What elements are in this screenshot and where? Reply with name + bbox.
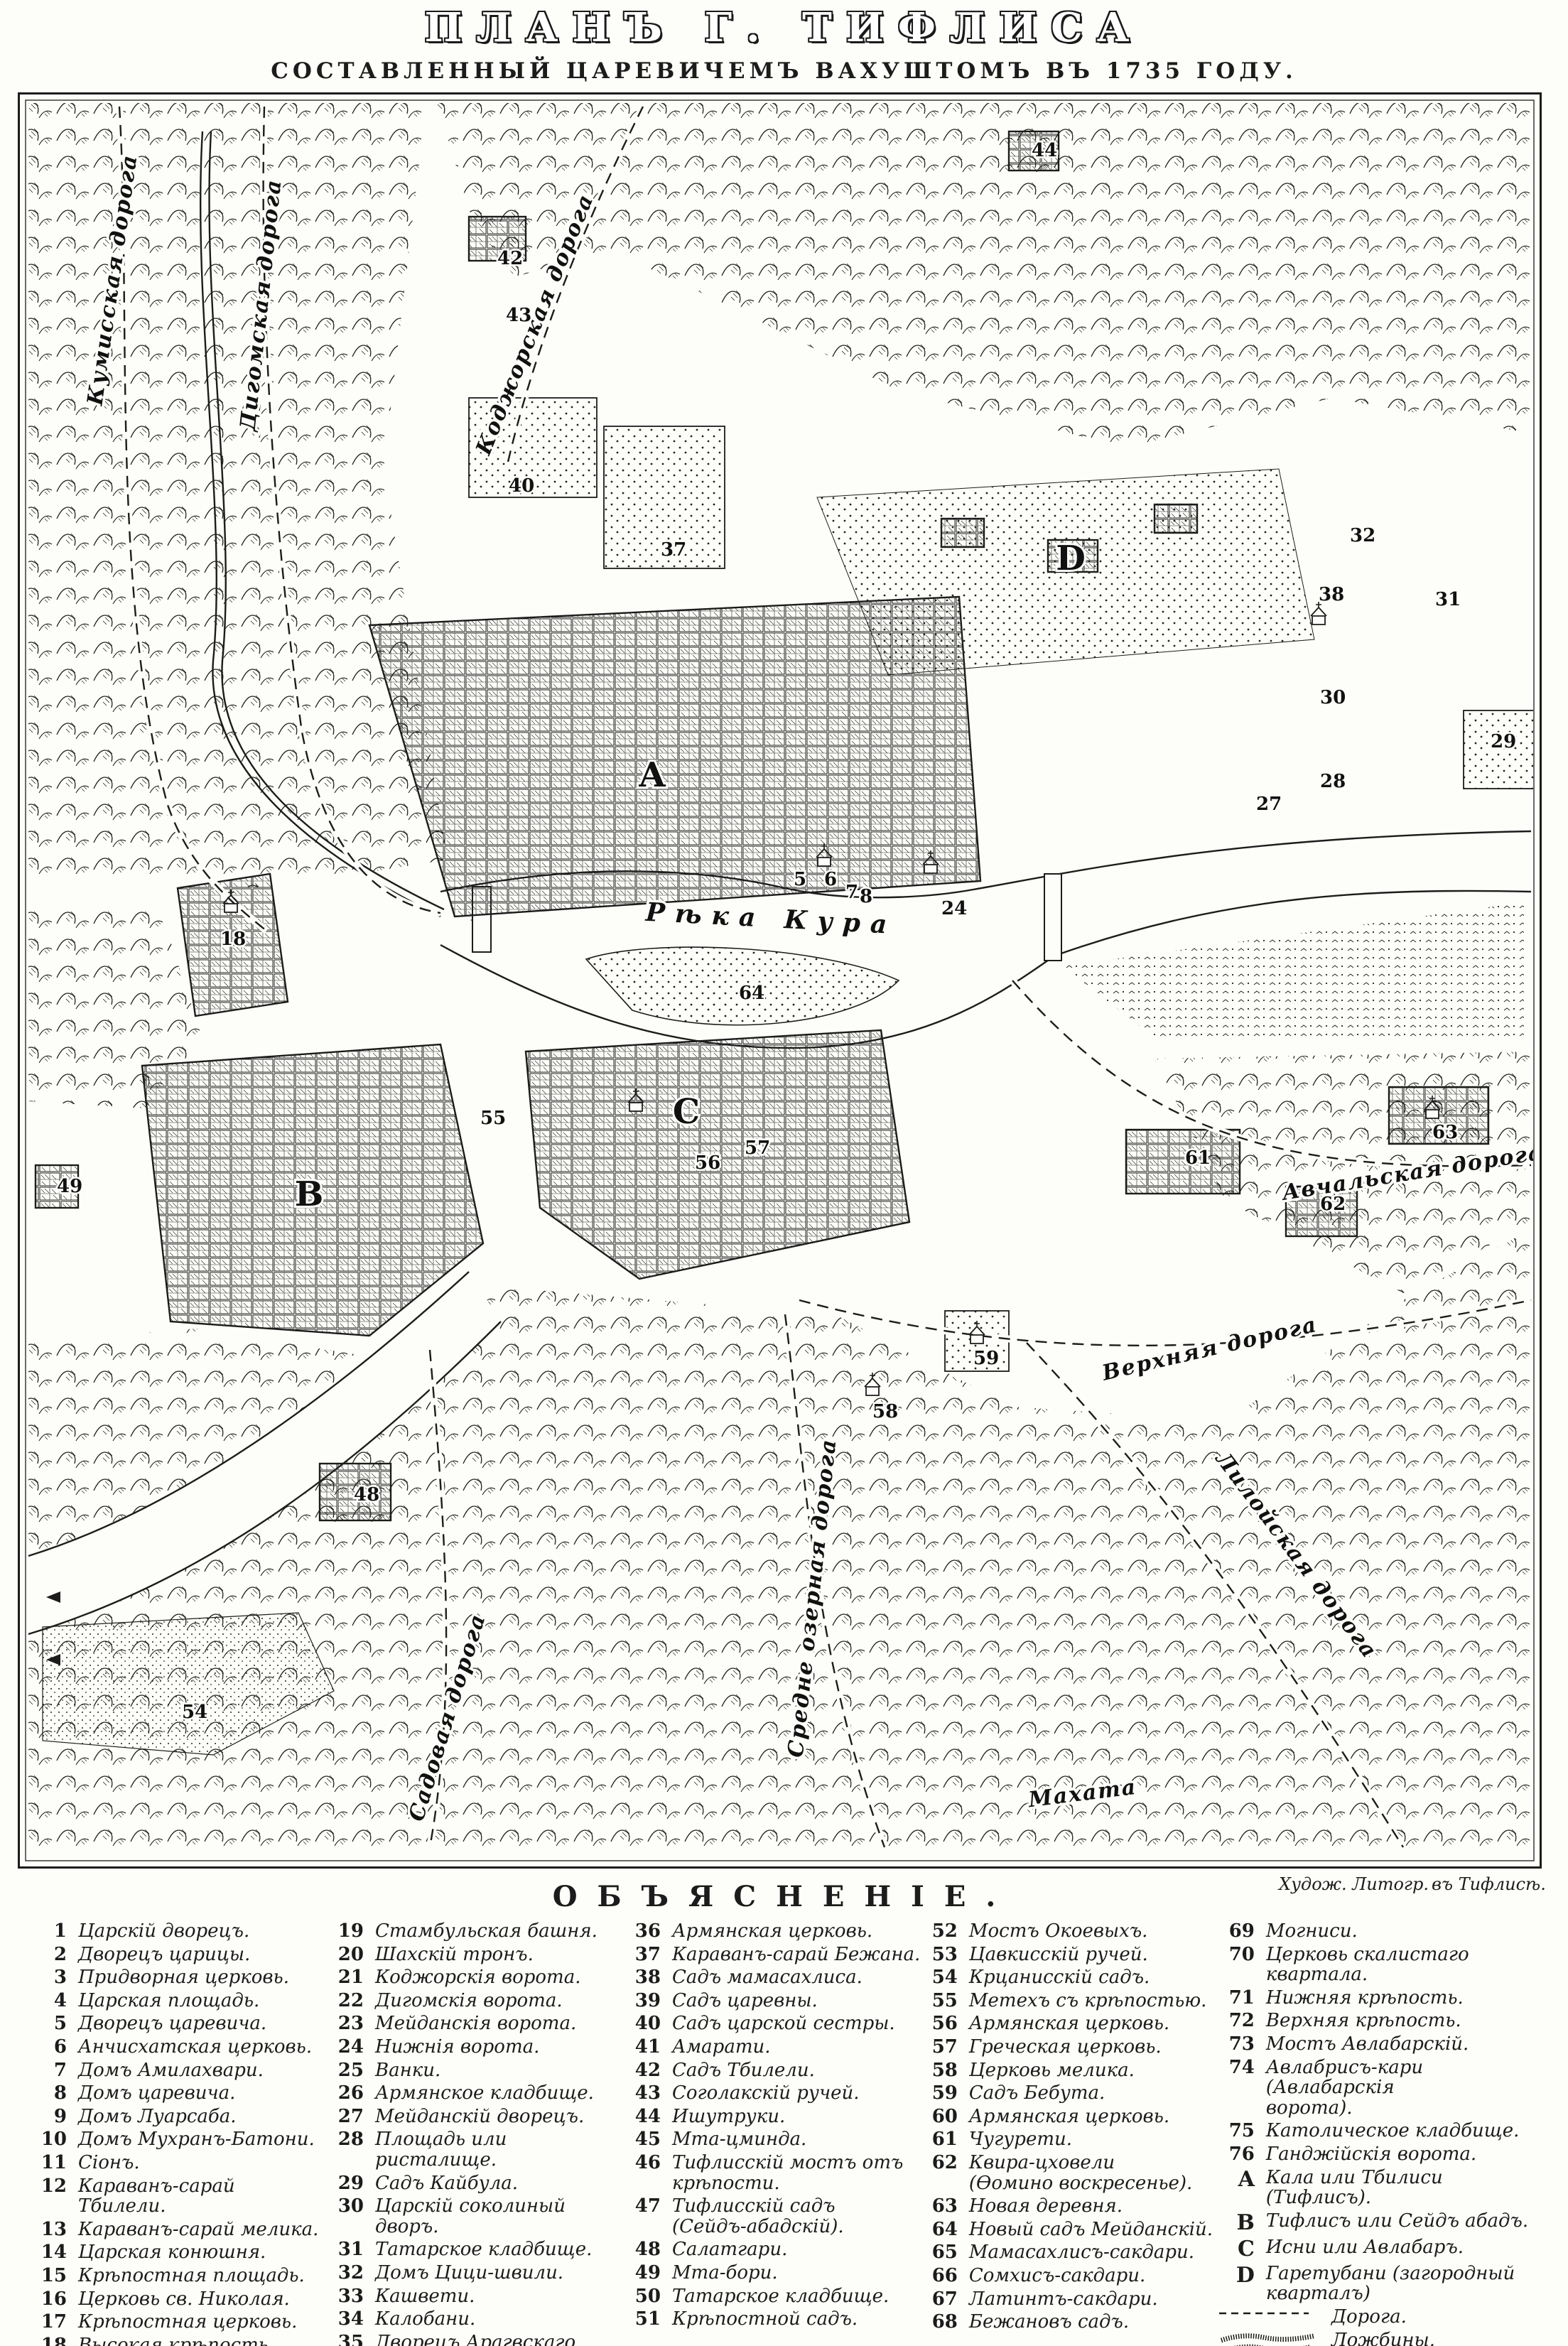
- legend-item-text: Царская конюшня.: [78, 2242, 266, 2263]
- legend-item-number: 25: [327, 2060, 375, 2081]
- legend-item: 73Мостъ Авлабарскій.: [1218, 2034, 1550, 2055]
- legend-item: 64Новый садъ Мейданскій.: [921, 2220, 1218, 2240]
- legend-item-number: 10: [30, 2129, 78, 2150]
- legend-item-text: Исни или Авлабаръ.: [1266, 2237, 1464, 2258]
- legend-item-number: 23: [327, 2013, 375, 2034]
- legend-item-text: Нижняя крѣпость.: [1266, 1988, 1464, 2009]
- legend-item-text: Армянская церковь.: [672, 1921, 872, 1942]
- legend-item-number: 46: [624, 2153, 672, 2173]
- legend-item: 65Мамасахлисъ-сакдари.: [921, 2242, 1218, 2263]
- legend-item-text: Площадь или ристалище.: [375, 2129, 624, 2170]
- legend-item-number: 64: [921, 2220, 969, 2240]
- legend-item-number: 70: [1218, 1945, 1266, 1965]
- legend-item: 24Нижнія ворота.: [327, 2037, 624, 2058]
- legend-item-number: 12: [30, 2176, 78, 2197]
- legend-item-number: 13: [30, 2220, 78, 2240]
- legend-item-text: Цавкисскій ручей.: [969, 1945, 1148, 1965]
- legend-item: 10Домъ Мухранъ-Батони.: [30, 2129, 327, 2150]
- legend-item-number: 73: [1218, 2034, 1266, 2055]
- legend-item-text: Домъ царевича.: [78, 2083, 235, 2104]
- legend-item: 45Мта-цминда.: [624, 2129, 921, 2150]
- legend-item-number: 50: [624, 2286, 672, 2307]
- legend-item: 48Салатгари.: [624, 2239, 921, 2260]
- legend-item-number: 1: [30, 1921, 78, 1942]
- map-marker: 28: [1320, 771, 1346, 792]
- avlabar-bridge: [1044, 874, 1061, 961]
- legend-item: 72Верхняя крѣпость.: [1218, 2011, 1550, 2031]
- map-marker: 18: [220, 929, 246, 950]
- legend-item: 7Домъ Амилахвари.: [30, 2060, 327, 2081]
- map-marker: 38: [1319, 584, 1344, 605]
- legend-item: 18Высокая крѣпость.: [30, 2335, 327, 2346]
- legend-item: 21Коджорскія ворота.: [327, 1967, 624, 1988]
- legend-item-number: 74: [1218, 2058, 1266, 2078]
- legend-item: 6Анчисхатская церковь.: [30, 2037, 327, 2058]
- legend-column-2: 19Стамбульская башня.20Шахскій тронъ.21К…: [327, 1921, 624, 2346]
- legend-item-number: 15: [30, 2266, 78, 2286]
- legend-item-text: Садъ мамасахлиса.: [672, 1967, 863, 1988]
- legend-item-text: Бежановъ садъ.: [969, 2312, 1129, 2333]
- road-label: Верхняя дорога: [1099, 1312, 1319, 1386]
- legend-item-number: 62: [921, 2153, 969, 2173]
- legend-item: 42Садъ Тбилели.: [624, 2060, 921, 2081]
- legend-item: AКала или Тбилиси (Тифлисъ).: [1218, 2168, 1550, 2208]
- map-marker: 6: [824, 869, 837, 890]
- map-marker: 59: [973, 1348, 999, 1369]
- legend-item-number: 41: [624, 2037, 672, 2058]
- legend-item: DГаретубани (загородный кварталъ): [1218, 2264, 1550, 2304]
- legend-item-number: 69: [1218, 1921, 1266, 1942]
- legend-item-text: Татарское кладбище.: [672, 2286, 889, 2307]
- district-letter: B: [295, 1174, 324, 1214]
- legend-item-number: 44: [624, 2107, 672, 2127]
- legend-item-text: Церковь скалистаго квартала.: [1266, 1945, 1550, 1985]
- legend-item: 46Тифлисскій мостъ отъ крѣпости.: [624, 2153, 921, 2193]
- legend-item-text: Кашвети.: [375, 2286, 475, 2307]
- legend-item-number: 47: [624, 2196, 672, 2217]
- legend-item: 56Армянская церковь.: [921, 2013, 1218, 2034]
- legend-item-text: Мостъ Окоевыхъ.: [969, 1921, 1148, 1942]
- legend-item-text: Татарское кладбище.: [375, 2239, 592, 2260]
- legend-item-number: 63: [921, 2196, 969, 2217]
- map-marker: 31: [1435, 589, 1461, 610]
- legend-item-number: 76: [1218, 2144, 1266, 2165]
- legend-item: 44Ишутруки.: [624, 2107, 921, 2127]
- legend-item-number: 57: [921, 2037, 969, 2058]
- legend-item-text: Мта-цминда.: [672, 2129, 806, 2150]
- legend-item: 53Цавкисскій ручей.: [921, 1945, 1218, 1965]
- legend-item-number: 8: [30, 2083, 78, 2104]
- legend-item-text: Стамбульская башня.: [375, 1921, 598, 1942]
- legend-item-number: 59: [921, 2083, 969, 2104]
- legend-item-number: 51: [624, 2309, 672, 2330]
- legend-item-text: Тифлисскій садъ (Сейдъ-абадскій).: [672, 2196, 844, 2237]
- legend-item: 66Сомхисъ-сакдари.: [921, 2266, 1218, 2286]
- map-canvas: Кумисская дорогаДигомская дорогаКоджорск…: [18, 92, 1542, 1869]
- legend-item-number: 68: [921, 2312, 969, 2333]
- legend-item-text: Крѣпостная площадь.: [78, 2266, 305, 2286]
- legend-item-number: 65: [921, 2242, 969, 2263]
- legend-item: 68Бежановъ садъ.: [921, 2312, 1218, 2333]
- legend-item-text: Дворецъ царевича.: [78, 2013, 266, 2034]
- legend-item-number: 7: [30, 2060, 78, 2081]
- legend-item-text: Караванъ-сарай Бежана.: [672, 1945, 920, 1965]
- legend-item-number: 75: [1218, 2121, 1266, 2141]
- legend-item: 33Кашвети.: [327, 2286, 624, 2307]
- legend-item-text: Крѣпостная церковь.: [78, 2312, 297, 2333]
- legend-item-text: Домъ Мухранъ-Батони.: [78, 2129, 315, 2150]
- legend-item-text: Анчисхатская церковь.: [78, 2037, 312, 2058]
- legend-item: 12Караванъ-сарай Тбилели.: [30, 2176, 327, 2217]
- legend-item-text: Садъ царевны.: [672, 1991, 818, 2011]
- legend: 1Царскій дворецъ.2Дворецъ царицы.3Придво…: [30, 1921, 1550, 2346]
- hollows-symbol-icon: [1218, 2330, 1331, 2346]
- legend-item: 37Караванъ-сарай Бежана.: [624, 1945, 921, 1965]
- legend-item-text: Соголакскій ручей.: [672, 2083, 860, 2104]
- legend-item-text: Кала или Тбилиси (Тифлисъ).: [1266, 2168, 1550, 2208]
- map-subtitle: СОСТАВЛЕННЫЙ ЦАРЕВИЧЕМЪ ВАХУШТОМЪ ВЪ 173…: [0, 58, 1568, 84]
- map-marker: 30: [1320, 687, 1346, 708]
- map-marker: 32: [1350, 525, 1375, 546]
- legend-item: 31Татарское кладбище.: [327, 2239, 624, 2260]
- legend-item-number: 16: [30, 2289, 78, 2310]
- map-marker: 49: [57, 1176, 82, 1197]
- legend-item-text: Мейданскія ворота.: [375, 2013, 576, 2034]
- legend-item-number: D: [1218, 2264, 1266, 2287]
- legend-item-text: Коджорскія ворота.: [375, 1967, 581, 1988]
- legend-item-text: Мта-бори.: [672, 2263, 778, 2283]
- legend-item-number: 40: [624, 2013, 672, 2034]
- legend-item: 27Мейданскій дворецъ.: [327, 2107, 624, 2127]
- legend-item: BТифлисъ или Сейдъ абадъ.: [1218, 2211, 1550, 2234]
- map-marker: 42: [497, 248, 523, 269]
- legend-item-number: 38: [624, 1967, 672, 1988]
- legend-item-text: Караванъ-сарай Тбилели.: [78, 2176, 327, 2217]
- map-marker: 56: [695, 1152, 720, 1174]
- legend-item: 29Садъ Кайбула.: [327, 2173, 624, 2194]
- legend-item: 8Домъ царевича.: [30, 2083, 327, 2104]
- legend-item: 58Церковь мелика.: [921, 2060, 1218, 2081]
- legend-symbol-item: Ложбины.: [1218, 2330, 1550, 2346]
- legend-item: 16Церковь св. Николая.: [30, 2289, 327, 2310]
- map-marker: 58: [872, 1401, 898, 1422]
- map-marker: 27: [1256, 794, 1282, 815]
- legend-item: 17Крѣпостная церковь.: [30, 2312, 327, 2333]
- legend-item: 70Церковь скалистаго квартала.: [1218, 1945, 1550, 1985]
- legend-item: 75Католическое кладбище.: [1218, 2121, 1550, 2141]
- legend-item-text: Сіонъ.: [78, 2153, 140, 2173]
- legend-item-text: Верхняя крѣпость.: [1266, 2011, 1461, 2031]
- legend-item: 40Садъ царской сестры.: [624, 2013, 921, 2034]
- legend-item-number: 2: [30, 1945, 78, 1965]
- legend-item-number: 28: [327, 2129, 375, 2150]
- legend-item: 59Садъ Бебута.: [921, 2083, 1218, 2104]
- legend-item-number: 3: [30, 1967, 78, 1988]
- legend-item: 61Чугурети.: [921, 2129, 1218, 2150]
- legend-item: 25Ванки.: [327, 2060, 624, 2081]
- legend-item-text: Сомхисъ-сакдари.: [969, 2266, 1145, 2286]
- legend-item-text: Дворецъ царицы.: [78, 1945, 250, 1965]
- legend-item-text: Ганджійскія ворота.: [1266, 2144, 1476, 2165]
- legend-item-text: Шахскій тронъ.: [375, 1945, 534, 1965]
- legend-item-text: Крцанисскій садъ.: [969, 1967, 1150, 1988]
- legend-item-number: 9: [30, 2107, 78, 2127]
- legend-item-text: Нижнія ворота.: [375, 2037, 539, 2058]
- legend-item: 14Царская конюшня.: [30, 2242, 327, 2263]
- legend-item: 36Армянская церковь.: [624, 1921, 921, 1942]
- legend-item-number: 5: [30, 2013, 78, 2034]
- district-letter: A: [638, 755, 666, 795]
- legend-item-number: 43: [624, 2083, 672, 2104]
- legend-item-text: Калобани.: [375, 2309, 475, 2330]
- legend-item-number: 60: [921, 2107, 969, 2127]
- legend-item: 28Площадь или ристалище.: [327, 2129, 624, 2170]
- legend-item: 69Могниси.: [1218, 1921, 1550, 1942]
- legend-column-1: 1Царскій дворецъ.2Дворецъ царицы.3Придво…: [30, 1921, 327, 2346]
- legend-item: 71Нижняя крѣпость.: [1218, 1988, 1550, 2009]
- legend-item-number: 71: [1218, 1988, 1266, 2009]
- map-marker: 7: [845, 882, 858, 903]
- legend-item-text: Авлабрисъ-кари (Авлабарскія ворота).: [1266, 2058, 1550, 2119]
- legend-item: 47Тифлисскій садъ (Сейдъ-абадскій).: [624, 2196, 921, 2237]
- legend-item-number: 19: [327, 1921, 375, 1942]
- legend-item-text: Гаретубани (загородный кварталъ): [1266, 2264, 1550, 2304]
- legend-item-text: Ложбины.: [1331, 2330, 1435, 2346]
- legend-item-text: Армянская церковь.: [969, 2013, 1169, 2034]
- map-marker: 37: [661, 539, 686, 561]
- map-title: ПЛАНЪ Г. ТИФЛИСА: [0, 4, 1568, 51]
- legend-item-text: Дигомскія ворота.: [375, 1991, 563, 2011]
- legend-item-text: Армянская церковь.: [969, 2107, 1169, 2127]
- legend-item-number: 42: [624, 2060, 672, 2081]
- legend-item: 34Калобани.: [327, 2309, 624, 2330]
- legend-item: CИсни или Авлабаръ.: [1218, 2237, 1550, 2261]
- map-marker: 62: [1320, 1194, 1346, 1215]
- legend-item-number: 26: [327, 2083, 375, 2104]
- legend-item: 35Дворецъ Арагвскаго эристава.: [327, 2333, 624, 2346]
- legend-item-text: Домъ Луарсаба.: [78, 2107, 237, 2127]
- map-marker: 40: [509, 475, 534, 497]
- legend-item: 20Шахскій тронъ.: [327, 1945, 624, 1965]
- legend-item-number: 17: [30, 2312, 78, 2333]
- legend-item-text: Дорога.: [1331, 2307, 1407, 2328]
- legend-item: 30Царскій соколиный дворъ.: [327, 2196, 624, 2237]
- legend-item-text: Чугурети.: [969, 2129, 1072, 2150]
- legend-item-number: 37: [624, 1945, 672, 1965]
- legend-item-text: Квира-цховели (Ѳомино воскресенье).: [969, 2153, 1192, 2193]
- legend-item: 76Ганджійскія ворота.: [1218, 2144, 1550, 2165]
- page: ПЛАНЪ Г. ТИФЛИСА СОСТАВЛЕННЫЙ ЦАРЕВИЧЕМЪ…: [0, 0, 1568, 2346]
- legend-item: 13Караванъ-сарай мелика.: [30, 2220, 327, 2240]
- legend-item-text: Церковь св. Николая.: [78, 2289, 290, 2310]
- legend-item-number: 33: [327, 2286, 375, 2307]
- legend-item-text: Метехъ съ крѣпостью.: [969, 1991, 1207, 2011]
- legend-item-text: Греческая церковь.: [969, 2037, 1162, 2058]
- legend-item-text: Садъ Тбилели.: [672, 2060, 815, 2081]
- legend-item-number: 18: [30, 2335, 78, 2346]
- map-marker: 29: [1491, 731, 1516, 752]
- legend-item-text: Царскій соколиный дворъ.: [375, 2196, 624, 2237]
- district-letter: C: [673, 1092, 700, 1132]
- legend-item-text: Царская площадь.: [78, 1991, 259, 2011]
- legend-item-text: Царскій дворецъ.: [78, 1921, 249, 1942]
- legend-item: 74Авлабрисъ-кари (Авлабарскія ворота).: [1218, 2058, 1550, 2119]
- legend-item-text: Новый садъ Мейданскій.: [969, 2220, 1213, 2240]
- legend-item: 3Придворная церковь.: [30, 1967, 327, 1988]
- legend-symbol-item: Дорога.: [1218, 2307, 1550, 2328]
- legend-item: 38Садъ мамасахлиса.: [624, 1967, 921, 1988]
- map-marker: 55: [480, 1108, 506, 1129]
- legend-header: ОБЪЯСНЕНІЕ.: [0, 1880, 1568, 1913]
- legend-item: 41Амарати.: [624, 2037, 921, 2058]
- legend-item: 1Царскій дворецъ.: [30, 1921, 327, 1942]
- district-letter: D: [1056, 539, 1086, 578]
- legend-item-number: 29: [327, 2173, 375, 2194]
- legend-item: 15Крѣпостная площадь.: [30, 2266, 327, 2286]
- map-marker: 44: [1032, 140, 1057, 161]
- legend-item-text: Новая деревня.: [969, 2196, 1123, 2217]
- legend-item-text: Ишутруки.: [672, 2107, 785, 2127]
- legend-item-number: 72: [1218, 2011, 1266, 2031]
- legend-item-number: 32: [327, 2263, 375, 2283]
- legend-item: 5Дворецъ царевича.: [30, 2013, 327, 2034]
- legend-item-number: 58: [921, 2060, 969, 2081]
- map-marker: 64: [739, 983, 764, 1004]
- legend-item: 19Стамбульская башня.: [327, 1921, 624, 1942]
- map-marker: 8: [860, 886, 872, 907]
- legend-item-number: 54: [921, 1967, 969, 1988]
- legend-item: 26Армянское кладбище.: [327, 2083, 624, 2104]
- map-marker: 48: [354, 1484, 379, 1506]
- legend-item: 67Латинтъ-сакдари.: [921, 2289, 1218, 2310]
- chugureti-61: [1126, 1130, 1240, 1194]
- legend-item-text: Домъ Амилахвари.: [78, 2060, 264, 2081]
- legend-item-text: Садъ царской сестры.: [672, 2013, 895, 2034]
- legend-item-number: 27: [327, 2107, 375, 2127]
- legend-item-number: 6: [30, 2037, 78, 2058]
- legend-item-number: 11: [30, 2153, 78, 2173]
- legend-item-number: 22: [327, 1991, 375, 2011]
- road-symbol-icon: [1218, 2307, 1331, 2318]
- legend-item-number: 53: [921, 1945, 969, 1965]
- legend-item-text: Мейданскій дворецъ.: [375, 2107, 584, 2127]
- legend-item-text: Армянское кладбище.: [375, 2083, 594, 2104]
- legend-item: 57Греческая церковь.: [921, 2037, 1218, 2058]
- legend-item: 22Дигомскія ворота.: [327, 1991, 624, 2011]
- legend-item: 63Новая деревня.: [921, 2196, 1218, 2217]
- legend-item-number: 4: [30, 1991, 78, 2011]
- map-marker: 5: [794, 869, 806, 890]
- legend-item-text: Тифлисъ или Сейдъ абадъ.: [1266, 2211, 1528, 2232]
- legend-item: 49Мта-бори.: [624, 2263, 921, 2283]
- legend-item: 32Домъ Цици-швили.: [327, 2263, 624, 2283]
- legend-item: 51Крѣпостной садъ.: [624, 2309, 921, 2330]
- legend-item-number: 52: [921, 1921, 969, 1942]
- legend-item-text: Мамасахлисъ-сакдари.: [969, 2242, 1194, 2263]
- legend-item-text: Латинтъ-сакдари.: [969, 2289, 1158, 2310]
- legend-item-text: Мостъ Авлабарскій.: [1266, 2034, 1469, 2055]
- legend-item-text: Придворная церковь.: [78, 1967, 289, 1988]
- legend-item-number: 66: [921, 2266, 969, 2286]
- legend-item: 4Царская площадь.: [30, 1991, 327, 2011]
- legend-item: 62Квира-цховели (Ѳомино воскресенье).: [921, 2153, 1218, 2193]
- legend-item-number: 34: [327, 2309, 375, 2330]
- legend-item-number: 56: [921, 2013, 969, 2034]
- map-marker: 54: [182, 1702, 207, 1723]
- legend-item-number: 30: [327, 2196, 375, 2217]
- legend-item: 23Мейданскія ворота.: [327, 2013, 624, 2034]
- legend-item: 54Крцанисскій садъ.: [921, 1967, 1218, 1988]
- legend-item-text: Крѣпостной садъ.: [672, 2309, 858, 2330]
- legend-item-number: 48: [624, 2239, 672, 2260]
- map-marker: 61: [1185, 1147, 1211, 1169]
- legend-item-text: Садъ Бебута.: [969, 2083, 1105, 2104]
- legend-item-number: 20: [327, 1945, 375, 1965]
- legend-item: 52Мостъ Окоевыхъ.: [921, 1921, 1218, 1942]
- legend-item-number: 14: [30, 2242, 78, 2263]
- legend-item-number: 55: [921, 1991, 969, 2011]
- legend-item-number: 67: [921, 2289, 969, 2310]
- legend-item: 55Метехъ съ крѣпостью.: [921, 1991, 1218, 2011]
- legend-item-number: 35: [327, 2333, 375, 2346]
- legend-column-5: 69Могниси.70Церковь скалистаго квартала.…: [1218, 1921, 1550, 2346]
- legend-item-number: 31: [327, 2239, 375, 2260]
- legend-item: 9Домъ Луарсаба.: [30, 2107, 327, 2127]
- legend-item-text: Ванки.: [375, 2060, 440, 2081]
- legend-item-text: Церковь мелика.: [969, 2060, 1135, 2081]
- legend-column-4: 52Мостъ Окоевыхъ.53Цавкисскій ручей.54Кр…: [921, 1921, 1218, 2346]
- legend-item-text: Католическое кладбище.: [1266, 2121, 1520, 2141]
- legend-item-number: 45: [624, 2129, 672, 2150]
- legend-item: 11Сіонъ.: [30, 2153, 327, 2173]
- legend-item-text: Высокая крѣпость.: [78, 2335, 274, 2346]
- legend-item-number: 36: [624, 1921, 672, 1942]
- legend-item-text: Домъ Цици-швили.: [375, 2263, 563, 2283]
- map-marker: 43: [506, 305, 531, 326]
- legend-item-text: Амарати.: [672, 2037, 771, 2058]
- legend-item-number: C: [1218, 2237, 1266, 2261]
- legend-item: 43Соголакскій ручей.: [624, 2083, 921, 2104]
- legend-item-text: Салатгари.: [672, 2239, 787, 2260]
- legend-item-text: Могниси.: [1266, 1921, 1358, 1942]
- legend-item-number: 21: [327, 1967, 375, 1988]
- legend-item-number: 24: [327, 2037, 375, 2058]
- legend-item: 50Татарское кладбище.: [624, 2286, 921, 2307]
- legend-item: 2Дворецъ царицы.: [30, 1945, 327, 1965]
- legend-item-number: 49: [624, 2263, 672, 2283]
- legend-item-number: 39: [624, 1991, 672, 2011]
- legend-item-text: Караванъ-сарай мелика.: [78, 2220, 318, 2240]
- legend-item-number: B: [1218, 2211, 1266, 2234]
- legend-item: 60Армянская церковь.: [921, 2107, 1218, 2127]
- map-marker: 24: [941, 898, 967, 919]
- legend-item-text: Дворецъ Арагвскаго эристава.: [375, 2333, 575, 2346]
- legend-item-number: A: [1218, 2168, 1266, 2191]
- legend-item-text: Тифлисскій мостъ отъ крѣпости.: [672, 2153, 903, 2193]
- legend-column-3: 36Армянская церковь.37Караванъ-сарай Беж…: [624, 1921, 921, 2346]
- legend-item: 39Садъ царевны.: [624, 1991, 921, 2011]
- map-marker: 57: [745, 1137, 770, 1159]
- legend-item-text: Садъ Кайбула.: [375, 2173, 518, 2194]
- legend-item-number: 61: [921, 2129, 969, 2150]
- map-marker: 63: [1432, 1122, 1458, 1143]
